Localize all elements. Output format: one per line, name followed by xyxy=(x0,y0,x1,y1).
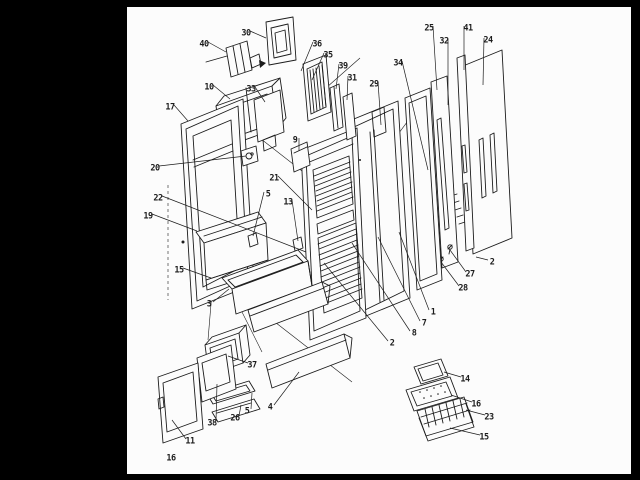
callout-label: 39 xyxy=(338,62,348,72)
callout-label: 3 xyxy=(207,300,212,310)
callout-label: 35 xyxy=(323,51,333,61)
callout-label: 31 xyxy=(347,74,357,84)
callout-label: 4 xyxy=(268,403,273,413)
callout-label: 21 xyxy=(269,174,279,184)
callout-label: 41 xyxy=(463,24,473,34)
callout-label: 5 xyxy=(245,407,250,417)
part-dispenser-bezel-30 xyxy=(266,17,296,65)
callout-label: 34 xyxy=(393,59,403,69)
scanned-manual-page: 4030363539313429253241241033179202122513… xyxy=(0,0,640,480)
callout-label: 27 xyxy=(465,270,475,280)
callout-label: 37 xyxy=(247,361,257,371)
callout-label: 2 xyxy=(490,258,495,268)
callout-label: 7 xyxy=(422,319,427,329)
callout-label: 8 xyxy=(412,329,417,339)
part-vent-grille-36-35 xyxy=(303,55,331,121)
callout-label: 13 xyxy=(283,198,293,208)
callout-label: 28 xyxy=(458,284,468,294)
callout-label: 17 xyxy=(165,103,175,113)
callout-label: 25 xyxy=(424,24,434,34)
callout-label: 26 xyxy=(230,414,240,424)
callout-label: 30 xyxy=(241,29,251,39)
callout-label: 2 xyxy=(390,339,395,349)
callout-label: 16 xyxy=(471,400,481,410)
callout-label: 32 xyxy=(439,37,449,47)
callout-label: 22 xyxy=(153,194,163,204)
callout-label: 14 xyxy=(460,375,470,385)
callout-label: 10 xyxy=(204,83,214,93)
callout-label: 38 xyxy=(207,419,217,429)
page-number: 16 xyxy=(166,454,176,464)
exploded-diagram: 4030363539313429253241241033179202122513… xyxy=(0,0,640,480)
callout-label: 29 xyxy=(369,80,379,90)
callout-label: 1 xyxy=(431,308,436,318)
callout-label: 36 xyxy=(312,40,322,50)
callout-label: 9 xyxy=(293,136,298,146)
callout-label: 23 xyxy=(484,413,494,423)
callout-label: 33 xyxy=(246,85,256,95)
callout-label: 11 xyxy=(185,437,195,447)
callout-label: 15 xyxy=(479,433,489,443)
callout-label: 20 xyxy=(150,164,160,174)
callout-label: 40 xyxy=(199,40,209,50)
callout-label: 15 xyxy=(174,266,184,276)
callout-label: 19 xyxy=(143,212,153,222)
callout-label: 24 xyxy=(483,36,493,46)
callout-label: 5 xyxy=(266,190,271,200)
